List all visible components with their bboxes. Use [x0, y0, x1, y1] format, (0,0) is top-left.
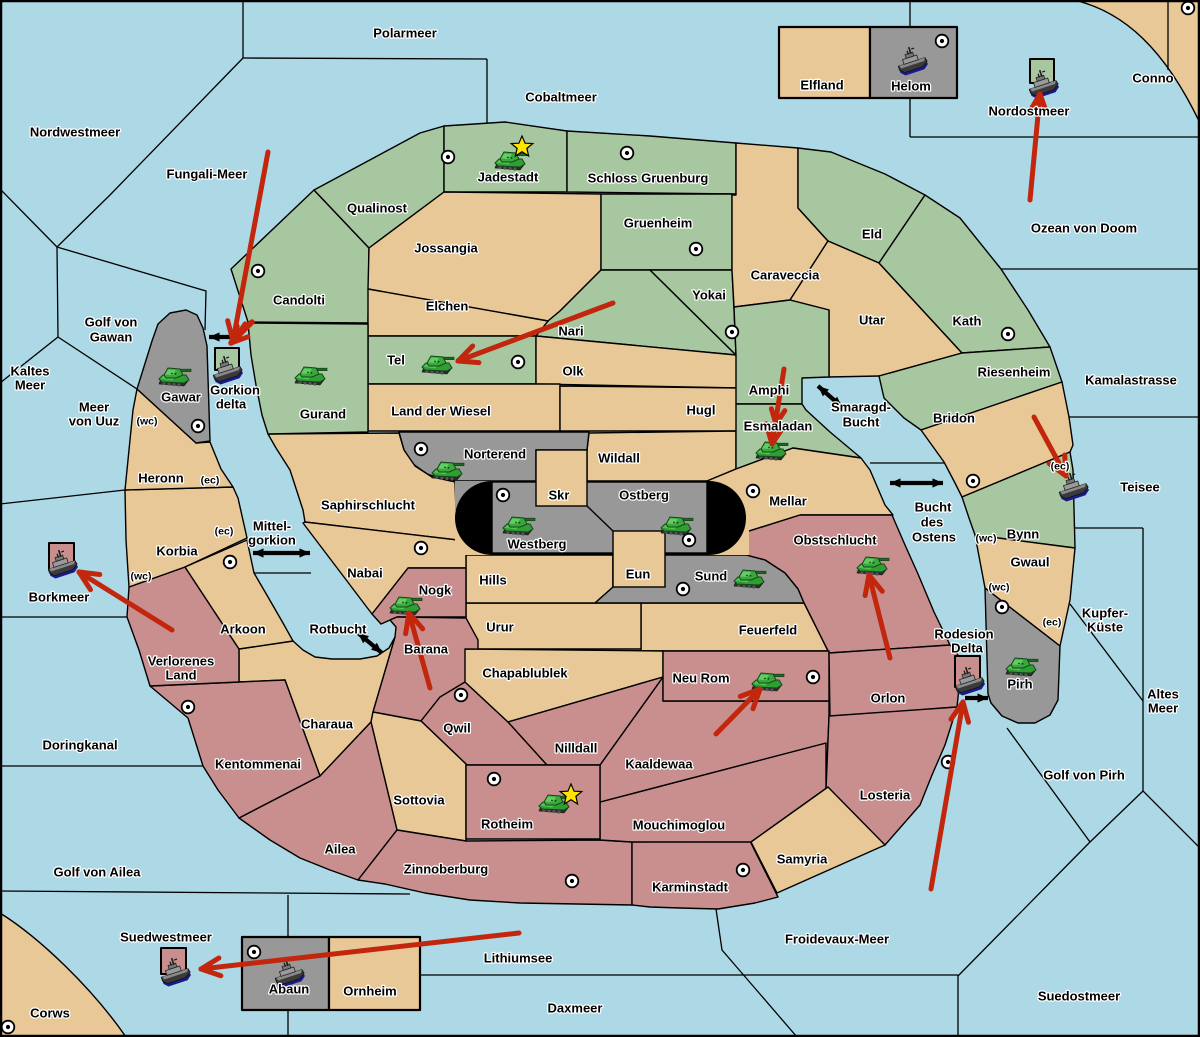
svg-text:Kupfer-: Kupfer- [1082, 606, 1128, 621]
svg-text:Yokai: Yokai [692, 288, 726, 303]
svg-text:Urur: Urur [486, 620, 513, 635]
svg-text:Jossangia: Jossangia [414, 241, 478, 256]
svg-text:Riesenheim: Riesenheim [978, 365, 1051, 380]
svg-text:Mittel-: Mittel- [253, 519, 291, 534]
svg-text:Corws: Corws [30, 1006, 70, 1021]
svg-text:Kentommenai: Kentommenai [215, 757, 301, 772]
svg-text:Land: Land [165, 668, 196, 683]
svg-text:Froidevaux-Meer: Froidevaux-Meer [785, 932, 889, 947]
svg-text:Caraveccia: Caraveccia [751, 268, 820, 283]
svg-text:Nogk: Nogk [419, 583, 452, 598]
svg-text:Qwil: Qwil [443, 721, 470, 736]
svg-text:Cobaltmeer: Cobaltmeer [525, 90, 597, 105]
svg-text:Hills: Hills [479, 573, 506, 588]
svg-text:Conno: Conno [1132, 71, 1173, 86]
svg-text:Karminstadt: Karminstadt [652, 880, 729, 895]
svg-text:Arkoon: Arkoon [220, 622, 266, 637]
svg-text:gorkion: gorkion [248, 533, 296, 548]
svg-text:Nilldall: Nilldall [555, 741, 598, 756]
svg-text:Eld: Eld [862, 227, 882, 242]
svg-text:Golf von: Golf von [85, 315, 138, 330]
svg-text:Utar: Utar [859, 313, 885, 328]
svg-text:Küste: Küste [1087, 620, 1123, 635]
svg-text:Losteria: Losteria [860, 788, 911, 803]
svg-text:(ec): (ec) [215, 526, 234, 538]
svg-text:Ostens: Ostens [912, 530, 956, 545]
svg-text:Ozean von Doom: Ozean von Doom [1031, 221, 1137, 236]
svg-text:Land der Wiesel: Land der Wiesel [391, 404, 491, 419]
svg-text:Rotheim: Rotheim [481, 817, 533, 832]
svg-text:Teisee: Teisee [1120, 480, 1160, 495]
svg-text:Rotbucht: Rotbucht [309, 622, 367, 637]
svg-text:Pirh: Pirh [1007, 677, 1032, 692]
svg-text:delta: delta [216, 397, 247, 412]
svg-text:(ec): (ec) [1051, 461, 1070, 473]
svg-text:Kath: Kath [953, 314, 982, 329]
svg-text:Meer: Meer [79, 400, 109, 415]
svg-text:Suedwestmeer: Suedwestmeer [120, 930, 212, 945]
svg-text:Bucht: Bucht [843, 415, 881, 430]
svg-text:Gwaul: Gwaul [1010, 555, 1049, 570]
svg-text:Ailea: Ailea [324, 842, 356, 857]
svg-text:Delta: Delta [951, 641, 984, 656]
svg-text:Bridon: Bridon [933, 411, 975, 426]
svg-text:Bucht: Bucht [915, 500, 953, 515]
svg-text:Ornheim: Ornheim [343, 984, 396, 999]
svg-text:Zinnoberburg: Zinnoberburg [404, 862, 489, 877]
svg-text:Smaragd-: Smaragd- [831, 400, 891, 415]
svg-text:Suedostmeer: Suedostmeer [1038, 989, 1120, 1004]
svg-text:Fungali-Meer: Fungali-Meer [167, 167, 248, 182]
svg-text:Charaua: Charaua [301, 717, 354, 732]
svg-text:Kaaldewaa: Kaaldewaa [625, 757, 693, 772]
svg-text:Gawan: Gawan [90, 330, 133, 345]
svg-text:Helom: Helom [891, 79, 931, 94]
svg-text:(wc): (wc) [137, 416, 158, 428]
svg-text:Olk: Olk [563, 364, 585, 379]
svg-text:Polarmeer: Polarmeer [373, 26, 437, 41]
svg-text:Hugl: Hugl [687, 403, 716, 418]
svg-text:Eun: Eun [626, 567, 651, 582]
svg-text:des: des [921, 515, 943, 530]
svg-text:Abaun: Abaun [269, 982, 310, 997]
svg-text:Verlorenes: Verlorenes [148, 654, 215, 669]
svg-text:Elchen: Elchen [426, 299, 469, 314]
svg-text:Bynn: Bynn [1007, 527, 1040, 542]
svg-text:(wc): (wc) [989, 582, 1010, 594]
svg-text:Elfland: Elfland [800, 78, 843, 93]
svg-text:Daxmeer: Daxmeer [548, 1001, 603, 1016]
svg-text:Kaltes: Kaltes [10, 364, 49, 379]
svg-text:Nordwestmeer: Nordwestmeer [30, 125, 120, 140]
svg-text:Schloss Gruenburg: Schloss Gruenburg [588, 171, 709, 186]
svg-text:(ec): (ec) [201, 475, 220, 487]
svg-text:von Uuz: von Uuz [69, 414, 120, 429]
svg-text:Samyria: Samyria [777, 852, 828, 867]
svg-text:Sund: Sund [695, 569, 728, 584]
svg-text:Rodesion: Rodesion [934, 627, 993, 642]
svg-text:Obstschlucht: Obstschlucht [793, 533, 877, 548]
svg-text:Nari: Nari [558, 324, 583, 339]
svg-text:Lithiumsee: Lithiumsee [484, 951, 553, 966]
svg-text:Barana: Barana [404, 642, 449, 657]
svg-text:Kamalastrasse: Kamalastrasse [1085, 373, 1177, 388]
svg-text:Nordostmeer: Nordostmeer [989, 104, 1070, 119]
svg-text:Heronn: Heronn [138, 471, 184, 486]
svg-text:Mouchimoglou: Mouchimoglou [633, 818, 725, 833]
svg-text:Saphirschlucht: Saphirschlucht [321, 498, 416, 513]
svg-text:Borkmeer: Borkmeer [29, 590, 90, 605]
svg-text:Neu Rom: Neu Rom [672, 671, 729, 686]
svg-text:Gorkion: Gorkion [210, 383, 260, 398]
svg-text:Gruenheim: Gruenheim [624, 216, 693, 231]
svg-text:Norterend: Norterend [464, 447, 526, 462]
svg-text:Meer: Meer [1148, 701, 1178, 716]
svg-text:(ec): (ec) [1043, 617, 1062, 629]
svg-text:Skr: Skr [549, 488, 570, 503]
svg-text:Feuerfeld: Feuerfeld [739, 623, 798, 638]
svg-text:Esmaladan: Esmaladan [744, 419, 813, 434]
svg-text:Tel: Tel [387, 353, 405, 368]
svg-text:Qualinost: Qualinost [347, 201, 408, 216]
svg-text:Jadestadt: Jadestadt [478, 170, 539, 185]
svg-text:Ostberg: Ostberg [619, 488, 669, 503]
svg-text:Gurand: Gurand [300, 407, 346, 422]
svg-text:Candolti: Candolti [273, 293, 325, 308]
svg-text:Meer: Meer [15, 378, 45, 393]
svg-text:Doringkanal: Doringkanal [42, 738, 117, 753]
svg-text:Golf von Pirh: Golf von Pirh [1043, 768, 1125, 783]
svg-text:Westberg: Westberg [508, 537, 567, 552]
svg-text:(wc): (wc) [131, 571, 152, 583]
svg-text:Sottovia: Sottovia [393, 793, 445, 808]
svg-text:Wildall: Wildall [598, 451, 640, 466]
svg-text:Altes: Altes [1147, 687, 1179, 702]
svg-text:Orlon: Orlon [871, 691, 906, 706]
svg-text:Mellar: Mellar [769, 494, 807, 509]
svg-text:(wc): (wc) [976, 533, 997, 545]
svg-text:Amphi: Amphi [749, 383, 789, 398]
svg-text:Korbia: Korbia [156, 544, 198, 559]
svg-text:Golf von Ailea: Golf von Ailea [54, 865, 142, 880]
svg-text:Gawar: Gawar [161, 390, 201, 405]
svg-text:Nabai: Nabai [347, 566, 382, 581]
svg-text:Chapablublek: Chapablublek [482, 666, 568, 681]
